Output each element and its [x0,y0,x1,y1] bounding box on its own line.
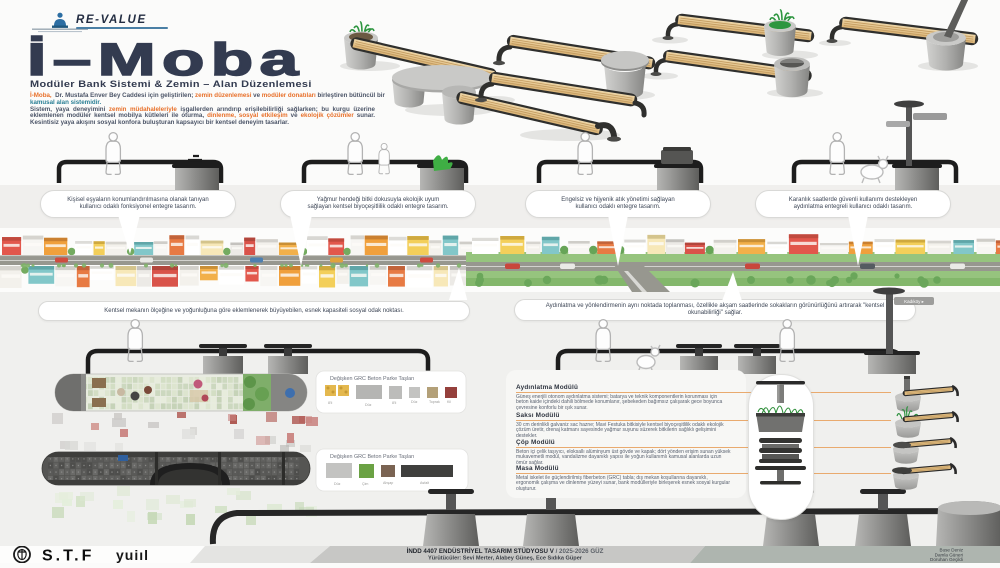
svg-text:S.T.F: S.T.F [42,548,94,564]
svg-text:yuiıl: yuiıl [116,547,149,563]
svg-text:Yürütücüler: Sevi Merter, Alab: Yürütücüler: Sevi Merter, Alabey Güneş, … [428,556,583,562]
svg-text:Doruhan Geçildi: Doruhan Geçildi [930,557,963,562]
svg-text:İNDD 4407 ENDÜSTRİYEL TASARIM: İNDD 4407 ENDÜSTRİYEL TASARIM STÜDYOSU V… [407,548,604,555]
